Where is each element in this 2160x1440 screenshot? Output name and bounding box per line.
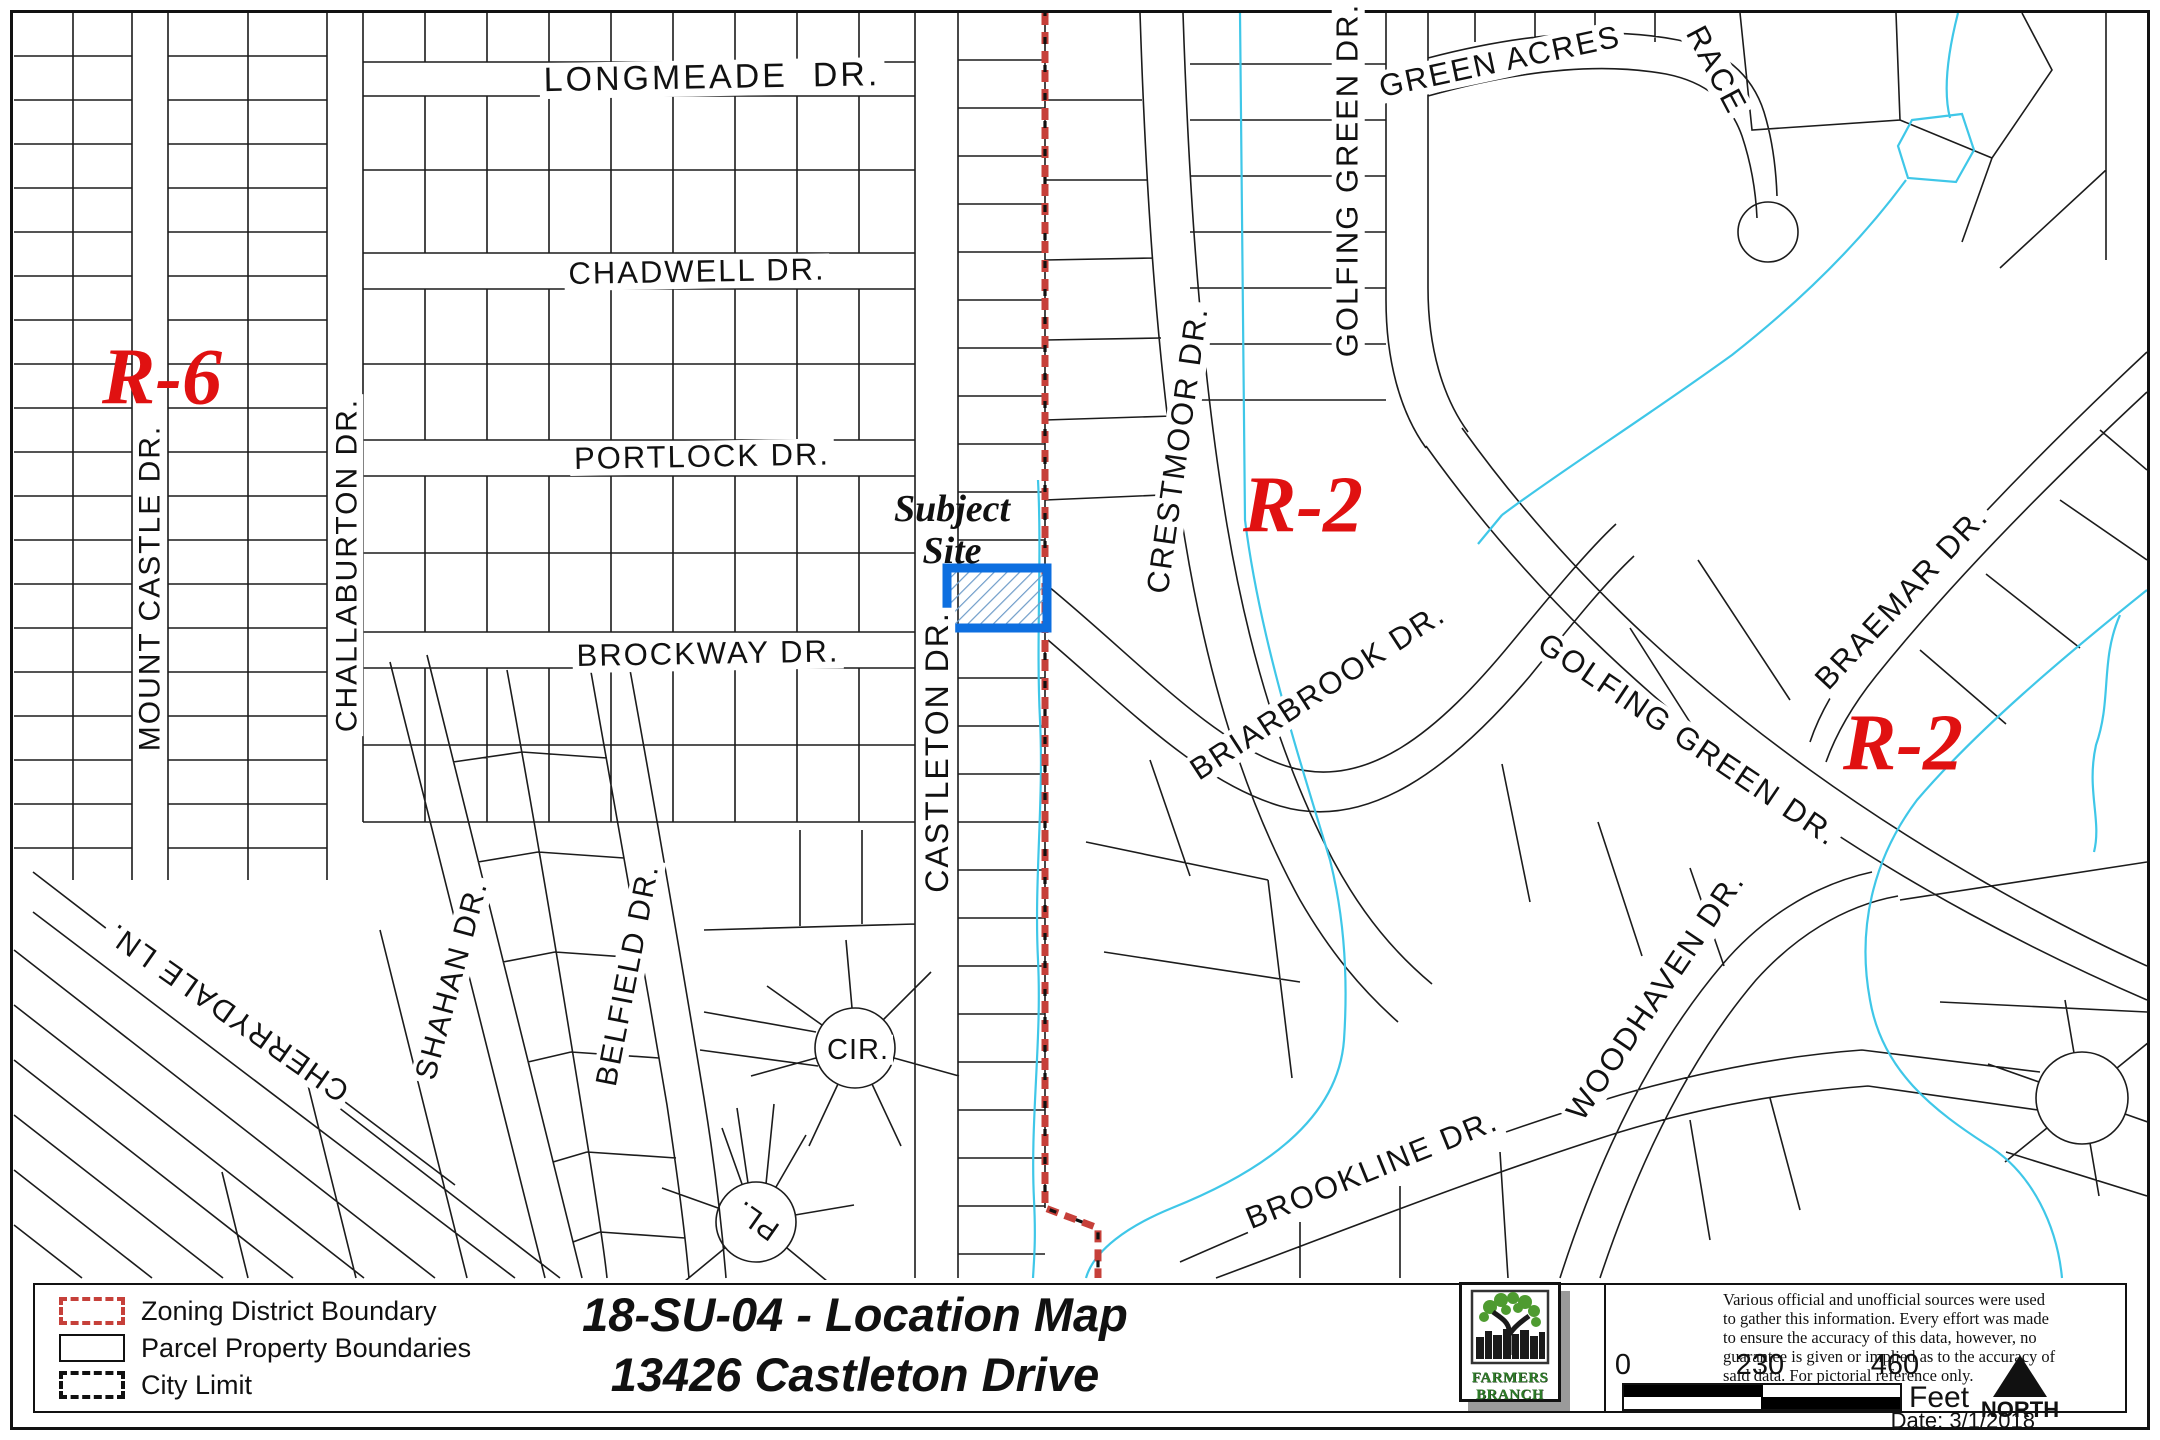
street-label-shahan-dr: SHAHAN DR. bbox=[409, 873, 495, 1087]
location-map-page: Subject Site LONGMEADE DR.CHADWELL DR.PO… bbox=[0, 0, 2160, 1440]
subject-site-label: Subject Site bbox=[842, 488, 1062, 572]
logo-name-line1: FARMERS bbox=[1462, 1370, 1558, 1387]
zoning-label-r2-east: R-2 bbox=[1843, 699, 1963, 790]
city-limit-symbol bbox=[59, 1371, 125, 1399]
scale-tick-460: 460 bbox=[1871, 1349, 1919, 1382]
map-title-line2: 13426 Castleton Drive bbox=[465, 1345, 1245, 1405]
parcel-property-boundaries-symbol bbox=[59, 1334, 125, 1362]
street-label-crestmoor-dr: CRESTMOOR DR. bbox=[1141, 300, 1215, 599]
street-label-longmeade-dr: LONGMEADE DR. bbox=[539, 57, 884, 99]
zoning-label-r6: R-6 bbox=[102, 333, 222, 424]
subject-site-label-line1: Subject bbox=[842, 488, 1062, 530]
legend-label: Zoning District Boundary bbox=[141, 1296, 437, 1327]
scale-bar bbox=[1622, 1383, 1902, 1411]
footer-divider bbox=[1604, 1285, 1606, 1411]
subject-site-label-line2: Site bbox=[842, 530, 1062, 572]
scale-tick-0: 0 bbox=[1615, 1349, 1631, 1382]
street-label-golfing-green-dr-s: GOLFING GREEN DR. bbox=[1529, 625, 1848, 855]
zoning-district-boundary-symbol bbox=[59, 1297, 125, 1325]
logo-name-line2: BRANCH bbox=[1462, 1387, 1558, 1404]
street-label-mount-castle-dr: MOUNT CASTLE DR. bbox=[134, 421, 166, 755]
map-title: 18-SU-04 - Location Map 13426 Castleton … bbox=[465, 1285, 1245, 1405]
street-label-castleton-dr: CASTLETON DR. bbox=[921, 607, 955, 896]
north-arrow-icon bbox=[1993, 1355, 2047, 1397]
legend-item-parcel-property-boundaries: Parcel Property Boundaries bbox=[59, 1332, 471, 1364]
street-label-briarbrook-dr: BRIARBROOK DR. bbox=[1181, 595, 1454, 788]
street-label-pl: PL. bbox=[726, 1192, 788, 1248]
street-label-woodhaven-dr: WOODHAVEN DR. bbox=[1559, 862, 1754, 1129]
street-label-golfing-green-dr-n: GOLFING GREEN DR. bbox=[1332, 0, 1365, 361]
street-label-belfield-dr: BELFIELD DR. bbox=[590, 857, 666, 1092]
legend-label: City Limit bbox=[141, 1370, 252, 1401]
street-label-brookline-dr: BROOKLINE DR. bbox=[1238, 1103, 1507, 1237]
legend-label: Parcel Property Boundaries bbox=[141, 1333, 471, 1364]
street-label-brockway-dr: BROCKWAY DR. bbox=[572, 635, 843, 672]
street-label-cir: CIR. bbox=[823, 1035, 893, 1065]
zoning-label-r2-central: R-2 bbox=[1243, 461, 1363, 552]
farmers-branch-emblem-icon bbox=[1470, 1289, 1550, 1365]
scale-bar-segment bbox=[1762, 1385, 1900, 1397]
street-label-cherrydale-ln: CHERRYDALE LN. bbox=[98, 914, 358, 1109]
street-label-braemar-dr: BRAEMAR DR. bbox=[1806, 497, 1997, 699]
street-label-portlock-dr: PORTLOCK DR. bbox=[570, 438, 835, 475]
street-label-green-acres-race: RACE bbox=[1678, 17, 1755, 122]
map-footer-strip: Zoning District Boundary Parcel Property… bbox=[33, 1283, 2127, 1413]
legend-item-zoning-district-boundary: Zoning District Boundary bbox=[59, 1295, 437, 1327]
farmers-branch-logo: FARMERS BRANCH bbox=[1459, 1282, 1561, 1402]
scale-bar-segment bbox=[1624, 1385, 1762, 1397]
map-labels-layer: Subject Site LONGMEADE DR.CHADWELL DR.PO… bbox=[0, 0, 2160, 1284]
street-label-chadwell-dr: CHADWELL DR. bbox=[564, 253, 830, 290]
map-title-line1: 18-SU-04 - Location Map bbox=[465, 1285, 1245, 1345]
scale-bar-segment bbox=[1624, 1397, 1762, 1409]
legend-item-city-limit: City Limit bbox=[59, 1369, 252, 1401]
street-label-green-acres: GREEN ACRES bbox=[1372, 20, 1627, 105]
map-date: Date: 3/1/2018 bbox=[1780, 1408, 2035, 1434]
scale-tick-230: 230 bbox=[1736, 1349, 1784, 1382]
street-label-challaburton-dr: CHALLABURTON DR. bbox=[331, 394, 363, 736]
